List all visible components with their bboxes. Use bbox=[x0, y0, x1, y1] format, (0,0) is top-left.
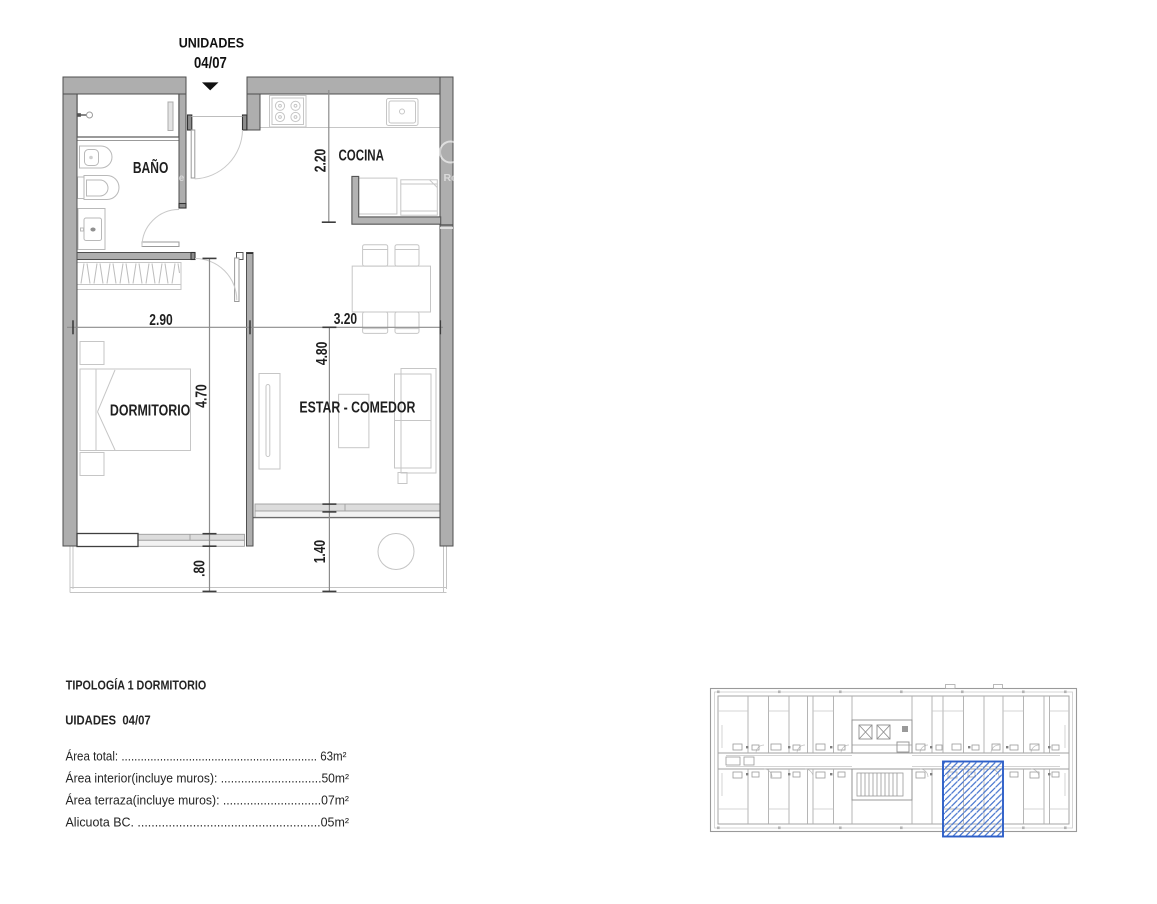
svg-text:e: e bbox=[179, 172, 185, 184]
svg-text:COCINA: COCINA bbox=[338, 147, 384, 164]
svg-text:4.70: 4.70 bbox=[192, 384, 210, 408]
svg-text:UNIDADES: UNIDADES bbox=[179, 35, 244, 51]
svg-text:.80: .80 bbox=[190, 560, 208, 577]
svg-text:Área terraza(incluye muros): .: Área terraza(incluye muros): ...........… bbox=[66, 792, 350, 807]
svg-text:4.80: 4.80 bbox=[312, 341, 330, 365]
svg-text:04/07: 04/07 bbox=[194, 55, 227, 72]
svg-text:3.20: 3.20 bbox=[334, 310, 358, 328]
svg-text:Área total: ..................: Área total: ............................… bbox=[66, 749, 347, 764]
svg-text:2.20: 2.20 bbox=[311, 149, 329, 173]
svg-text:BAÑO: BAÑO bbox=[133, 157, 168, 177]
svg-text:1.40: 1.40 bbox=[310, 540, 328, 564]
svg-text:TIPOLOGÍA 1 DORMITORIO: TIPOLOGÍA 1 DORMITORIO bbox=[66, 678, 207, 693]
svg-text:Re: Re bbox=[444, 172, 458, 184]
svg-text:UIDADES 04/07: UIDADES 04/07 bbox=[65, 714, 151, 728]
svg-text:DORMITORIO: DORMITORIO bbox=[110, 402, 190, 420]
svg-text:Alicuota BC. .................: Alicuota BC. ...........................… bbox=[66, 816, 350, 830]
svg-text:Área interior(incluye muros):: Área interior(incluye muros): ..........… bbox=[66, 770, 350, 785]
svg-text:2.90: 2.90 bbox=[149, 310, 173, 328]
svg-text:ESTAR - COMEDOR: ESTAR - COMEDOR bbox=[299, 399, 416, 417]
